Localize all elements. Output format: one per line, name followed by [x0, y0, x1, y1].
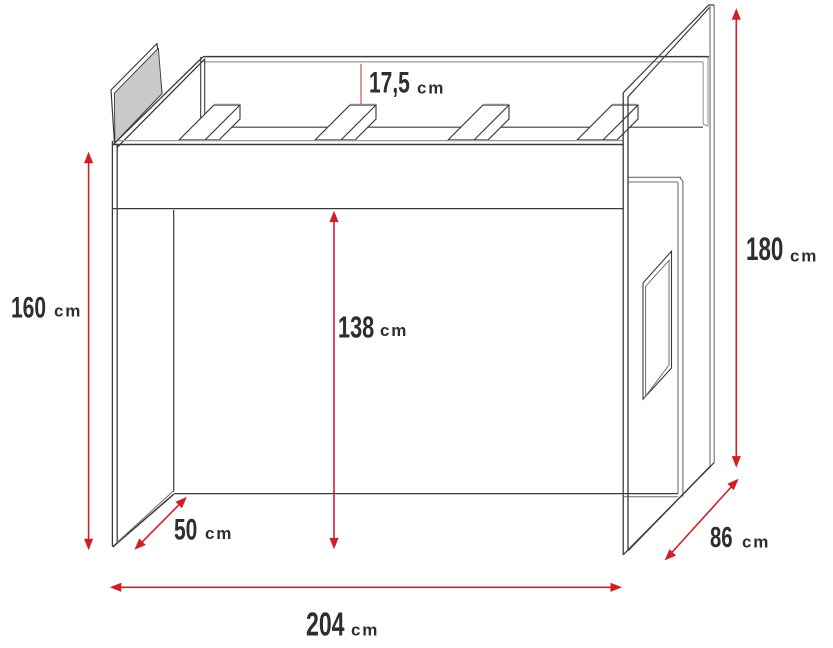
svg-text:cm: cm — [790, 247, 818, 266]
svg-text:160: 160 — [11, 292, 46, 324]
svg-text:204: 204 — [306, 607, 345, 644]
svg-text:cm: cm — [54, 302, 82, 321]
svg-text:cm: cm — [205, 524, 233, 543]
svg-text:86: 86 — [710, 522, 733, 554]
svg-text:cm: cm — [380, 321, 408, 340]
svg-text:50: 50 — [174, 514, 197, 546]
svg-text:138: 138 — [338, 310, 374, 345]
svg-text:17,5: 17,5 — [369, 67, 410, 99]
svg-text:cm: cm — [351, 621, 379, 640]
svg-text:180: 180 — [746, 231, 783, 267]
svg-text:cm: cm — [742, 533, 770, 552]
svg-text:cm: cm — [417, 79, 445, 98]
